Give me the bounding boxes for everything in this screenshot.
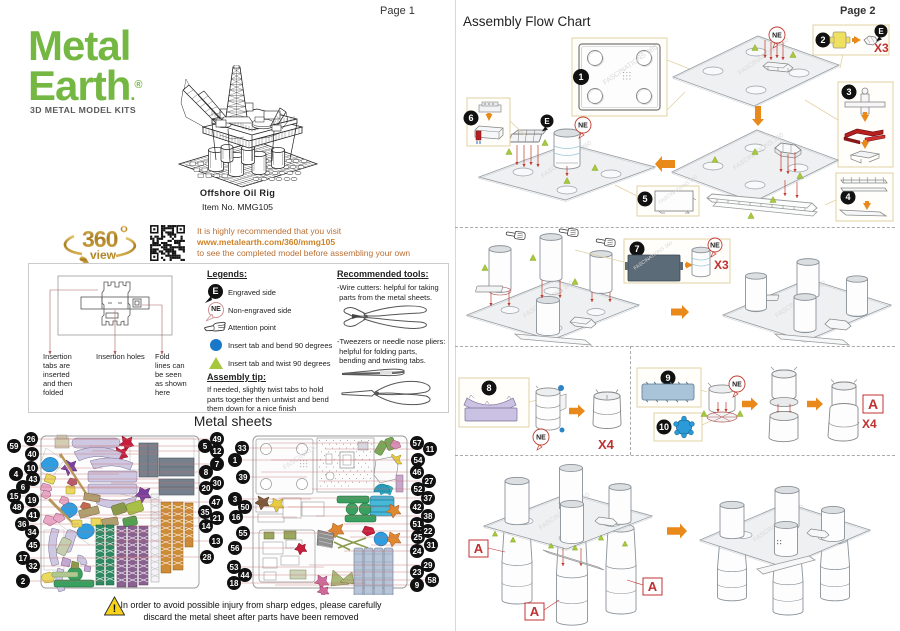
svg-text:6: 6 — [21, 483, 26, 492]
svg-text:52: 52 — [414, 485, 423, 494]
svg-text:30: 30 — [213, 479, 222, 488]
svg-text:24: 24 — [413, 547, 422, 556]
svg-text:5: 5 — [642, 194, 647, 204]
svg-text:A: A — [648, 579, 658, 594]
svg-text:35: 35 — [201, 508, 210, 517]
svg-text:2: 2 — [820, 35, 825, 45]
svg-text:E: E — [878, 27, 884, 36]
svg-text:8: 8 — [204, 468, 209, 477]
svg-text:59: 59 — [10, 442, 19, 451]
svg-text:10: 10 — [27, 464, 36, 473]
svg-text:21: 21 — [213, 514, 222, 523]
svg-text:8: 8 — [486, 383, 491, 393]
svg-text:18: 18 — [230, 579, 239, 588]
svg-text:44: 44 — [241, 571, 250, 580]
svg-text:6: 6 — [468, 113, 473, 123]
svg-text:39: 39 — [239, 473, 248, 482]
svg-text:NE: NE — [772, 33, 782, 40]
svg-text:40: 40 — [28, 450, 37, 459]
svg-text:28: 28 — [203, 553, 212, 562]
svg-text:25: 25 — [414, 533, 423, 542]
svg-text:58: 58 — [428, 576, 437, 585]
svg-text:11: 11 — [426, 445, 435, 454]
svg-text:1: 1 — [578, 72, 583, 82]
svg-text:5: 5 — [203, 442, 208, 451]
svg-text:42: 42 — [413, 503, 422, 512]
svg-text:55: 55 — [239, 529, 248, 538]
svg-text:17: 17 — [19, 554, 28, 563]
svg-text:50: 50 — [241, 503, 250, 512]
svg-text:E: E — [544, 117, 550, 126]
svg-text:51: 51 — [413, 520, 422, 529]
svg-text:9: 9 — [415, 581, 420, 590]
svg-text:1: 1 — [233, 456, 238, 465]
svg-text:48: 48 — [13, 503, 22, 512]
svg-text:3: 3 — [846, 87, 851, 97]
svg-text:43: 43 — [29, 475, 38, 484]
svg-text:49: 49 — [213, 435, 222, 444]
svg-text:4: 4 — [14, 470, 19, 479]
svg-text:57: 57 — [413, 439, 422, 448]
svg-text:15: 15 — [10, 492, 19, 501]
svg-text:36: 36 — [18, 520, 27, 529]
svg-text:NE: NE — [536, 435, 546, 442]
svg-text:22: 22 — [424, 527, 433, 536]
svg-text:2: 2 — [21, 577, 26, 586]
svg-text:4: 4 — [845, 192, 850, 202]
svg-text:9: 9 — [665, 373, 670, 383]
svg-text:NE: NE — [732, 382, 742, 389]
svg-text:33: 33 — [238, 444, 247, 453]
svg-text:54: 54 — [414, 456, 423, 465]
svg-text:NE: NE — [710, 243, 720, 250]
svg-text:37: 37 — [424, 494, 433, 503]
svg-text:56: 56 — [231, 544, 240, 553]
svg-text:view: view — [90, 248, 117, 262]
svg-text:14: 14 — [202, 522, 211, 531]
svg-text:7: 7 — [634, 244, 639, 254]
svg-text:41: 41 — [29, 511, 38, 520]
svg-text:7: 7 — [215, 460, 220, 469]
svg-text:29: 29 — [424, 561, 433, 570]
svg-text:NE: NE — [578, 123, 588, 130]
svg-text:47: 47 — [212, 498, 221, 507]
svg-text:A: A — [530, 604, 540, 619]
svg-text:32: 32 — [29, 562, 38, 571]
svg-text:46: 46 — [413, 468, 422, 477]
svg-text:X4: X4 — [862, 417, 877, 431]
svg-text:X3: X3 — [874, 41, 889, 55]
svg-text:A: A — [474, 541, 484, 556]
svg-text:31: 31 — [427, 541, 436, 550]
svg-text:A: A — [868, 396, 878, 412]
svg-text:20: 20 — [202, 484, 211, 493]
svg-text:53: 53 — [230, 563, 239, 572]
svg-text:13: 13 — [212, 537, 221, 546]
svg-text:38: 38 — [424, 512, 433, 521]
svg-text:X4: X4 — [598, 437, 615, 452]
svg-text:19: 19 — [28, 496, 37, 505]
svg-text:26: 26 — [27, 435, 36, 444]
svg-text:12: 12 — [213, 447, 222, 456]
svg-text:45: 45 — [29, 541, 38, 550]
svg-text:16: 16 — [232, 513, 241, 522]
svg-text:27: 27 — [425, 477, 434, 486]
svg-text:23: 23 — [413, 568, 422, 577]
svg-text:X3: X3 — [714, 258, 729, 272]
svg-text:10: 10 — [659, 422, 669, 432]
svg-text:3: 3 — [233, 495, 238, 504]
svg-text:34: 34 — [28, 528, 37, 537]
